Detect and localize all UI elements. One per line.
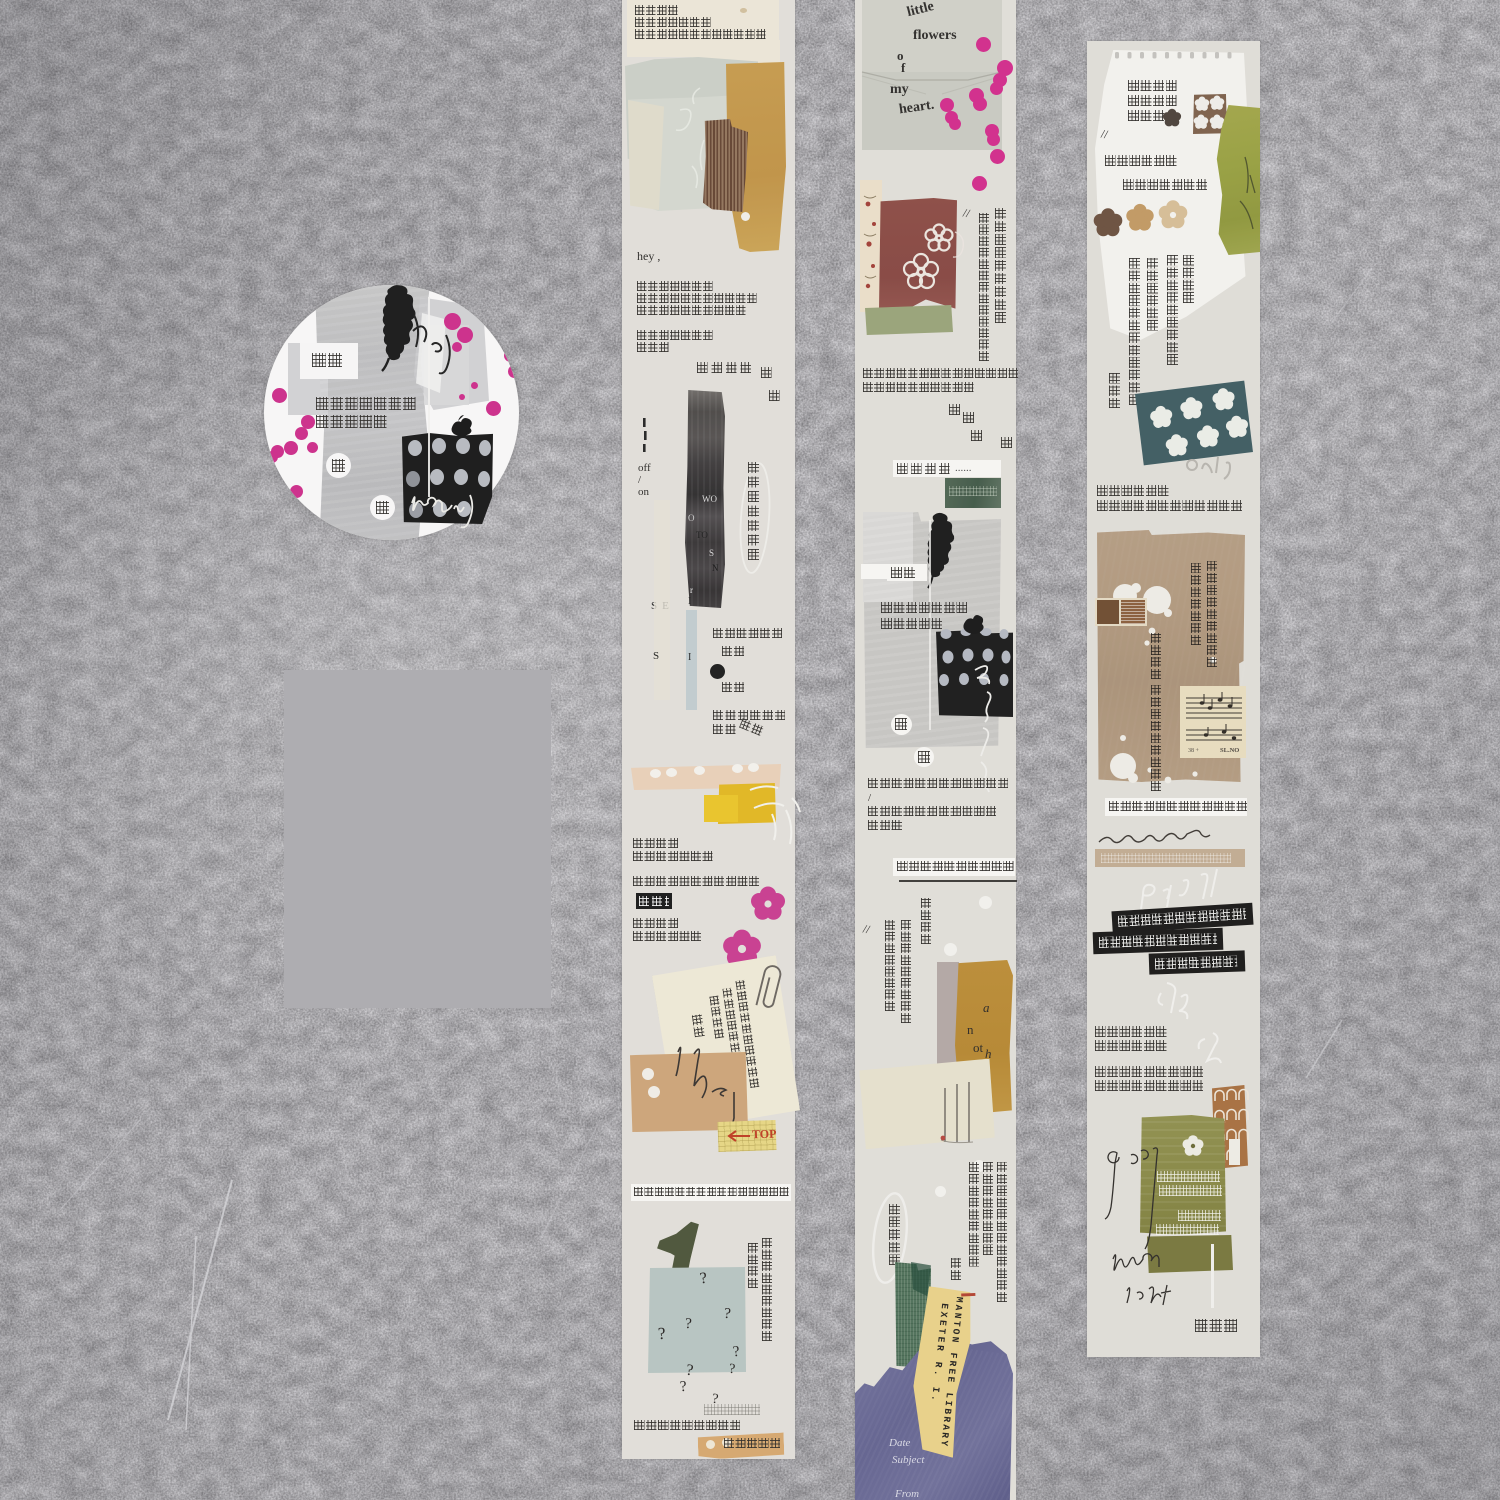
svg-text:SL.NO: SL.NO (1220, 747, 1239, 754)
svg-text:38 +: 38 + (1188, 748, 1200, 754)
